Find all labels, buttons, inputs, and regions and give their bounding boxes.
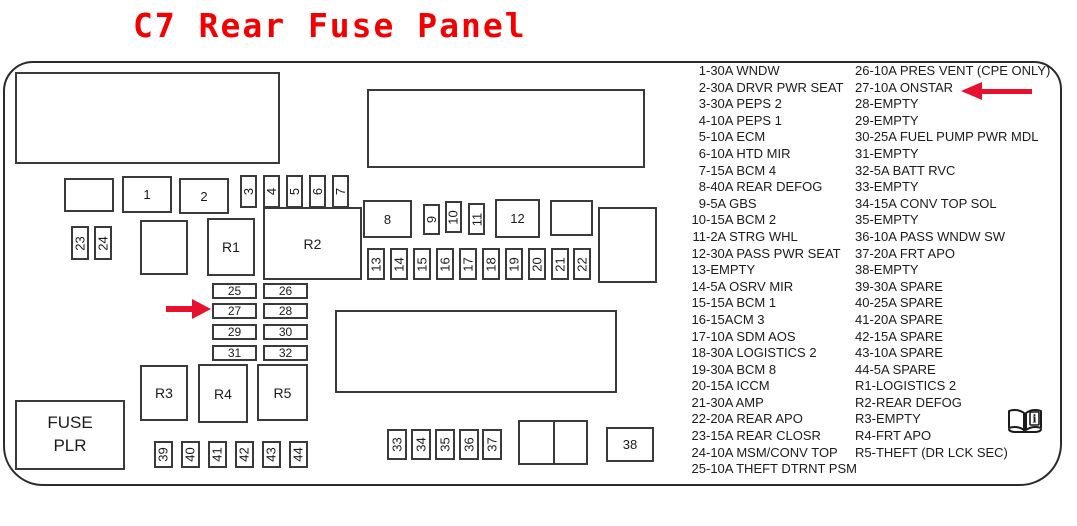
fuse-28: 28 xyxy=(263,303,308,319)
fuse-30: 30 xyxy=(263,324,308,340)
fuse-27: 27 xyxy=(212,303,257,319)
legend-entry: 43-10A SPARE xyxy=(855,345,1055,362)
fuse-25-label: 25 xyxy=(228,285,241,297)
fuse-2-label: 2 xyxy=(200,190,207,203)
legend-entry: 17-10A SDM AOS xyxy=(690,329,852,346)
fuse-37: 37 xyxy=(482,429,502,460)
legend-entry: 2-30A DRVR PWR SEAT xyxy=(690,80,852,97)
blank-box-row1 xyxy=(64,178,114,212)
fuse-panel-diagram-page: C7 Rear Fuse Panel FUSE PLR 123456789101… xyxy=(0,0,1077,526)
fuse-plr-label-line1: FUSE xyxy=(47,412,92,435)
legend-entry: 5-10A ECM xyxy=(690,129,852,146)
legend-entry: 7-15A BCM 4 xyxy=(690,163,852,180)
fuse-9: 9 xyxy=(423,204,440,235)
legend-entry: R1-LOGISTICS 2 xyxy=(855,378,1055,395)
fuse-41: 41 xyxy=(208,441,227,468)
legend-entry: 18-30A LOGISTICS 2 xyxy=(690,345,852,362)
legend-entry: 24-10A MSM/CONV TOP xyxy=(690,445,852,462)
fuse-33-label: 33 xyxy=(391,437,404,451)
fuse-41-label: 41 xyxy=(211,447,224,461)
legend-entry: 16-15ACM 3 xyxy=(690,312,852,329)
fuse-4-label: 4 xyxy=(265,188,278,195)
legend-entry: 1-30A WNDW xyxy=(690,63,852,80)
legend-entry: 29-EMPTY xyxy=(855,113,1055,130)
owners-manual-book-icon: i xyxy=(1006,407,1044,437)
legend-entry: 42-15A SPARE xyxy=(855,329,1055,346)
legend-entry: 39-30A SPARE xyxy=(855,279,1055,296)
fuse-1: 1 xyxy=(122,176,172,213)
legend-entry: 41-20A SPARE xyxy=(855,312,1055,329)
fuse-39-label: 39 xyxy=(157,447,170,461)
fuse-20: 20 xyxy=(528,248,546,280)
fuse-18-label: 18 xyxy=(485,257,498,271)
fuse-6: 6 xyxy=(309,175,326,208)
fuse-24-label: 24 xyxy=(97,236,110,250)
legend-entry: 10-15A BCM 2 xyxy=(690,212,852,229)
legend-entry: 22-20A REAR APO xyxy=(690,411,852,428)
legend-entry: 37-20A FRT APO xyxy=(855,246,1055,263)
legend-entry: 6-10A HTD MIR xyxy=(690,146,852,163)
legend-entry: 9-5A GBS xyxy=(690,196,852,213)
fuse-34-label: 34 xyxy=(415,437,428,451)
fuse-32: 32 xyxy=(263,345,308,361)
fuse-11: 11 xyxy=(468,203,485,235)
fuse-3: 3 xyxy=(240,175,257,208)
fuse-24: 24 xyxy=(94,226,112,260)
fuse-21: 21 xyxy=(551,248,569,280)
legend-entry: 25-10A THEFT DTRNT PSM xyxy=(690,461,852,478)
fuse-30-label: 30 xyxy=(279,326,292,338)
fuse-8-label: 8 xyxy=(384,213,391,226)
blank-box-mid-left xyxy=(140,220,188,275)
fuse-8: 8 xyxy=(363,200,412,238)
connector-block-top-middle xyxy=(367,89,645,168)
fuse-35: 35 xyxy=(435,429,455,460)
fuse-5-label: 5 xyxy=(288,188,301,195)
fuse-23: 23 xyxy=(71,226,89,260)
fuse-1-label: 1 xyxy=(143,188,150,201)
double-cavity-box xyxy=(518,420,588,465)
fuse-plr-label-line2: PLR xyxy=(53,435,86,458)
fuse-4: 4 xyxy=(263,175,280,208)
fuse-19: 19 xyxy=(505,248,523,280)
double-cavity-divider xyxy=(553,422,555,463)
legend-entry: 23-15A REAR CLOSR xyxy=(690,428,852,445)
fuse-12-label: 12 xyxy=(510,212,524,225)
legend-column-1: 1-30A WNDW2-30A DRVR PWR SEAT3-30A PEPS … xyxy=(690,63,852,478)
legend-entry: 32-5A BATT RVC xyxy=(855,163,1055,180)
fuse-18: 18 xyxy=(482,248,500,280)
relay-r1: R1 xyxy=(207,218,255,276)
fuse-36: 36 xyxy=(459,429,479,460)
fuse-42-label: 42 xyxy=(238,447,251,461)
fuse-20-label: 20 xyxy=(531,257,544,271)
fuse-15-label: 15 xyxy=(416,257,429,271)
blank-box-tall-right xyxy=(598,207,657,283)
fuse-35-label: 35 xyxy=(439,437,452,451)
connector-block-bottom-middle xyxy=(335,310,617,393)
relay-r5: R5 xyxy=(257,364,308,421)
fuse-39: 39 xyxy=(154,441,173,468)
arrow-head xyxy=(192,299,211,319)
fuse-22-label: 22 xyxy=(576,257,589,271)
legend-entry: 31-EMPTY xyxy=(855,146,1055,163)
relay-r3-label: R3 xyxy=(155,386,173,400)
fuse-6-label: 6 xyxy=(311,188,324,195)
fuse-36-label: 36 xyxy=(463,437,476,451)
relay-r5-label: R5 xyxy=(274,386,292,400)
blank-box-right-of-12 xyxy=(550,200,593,236)
fuse-13: 13 xyxy=(367,248,385,280)
legend-entry: 38-EMPTY xyxy=(855,262,1055,279)
legend-entry: 12-30A PASS PWR SEAT xyxy=(690,246,852,263)
legend-entry: 35-EMPTY xyxy=(855,212,1055,229)
arrow-tail xyxy=(166,306,192,312)
legend-entry: 27-10A ONSTAR xyxy=(855,80,1055,97)
fuse-16-label: 16 xyxy=(439,257,452,271)
relay-r3: R3 xyxy=(140,365,188,421)
legend-entry: 4-10A PEPS 1 xyxy=(690,113,852,130)
fuse-25: 25 xyxy=(212,283,257,299)
legend-entry: 11-2A STRG WHL xyxy=(690,229,852,246)
fuse-38: 38 xyxy=(606,427,654,462)
relay-r4: R4 xyxy=(198,364,248,423)
svg-text:i: i xyxy=(1032,413,1036,426)
relay-r2: R2 xyxy=(263,207,362,280)
legend-column-2: 26-10A PRES VENT (CPE ONLY)27-10A ONSTAR… xyxy=(855,63,1055,461)
legend-entry: 33-EMPTY xyxy=(855,179,1055,196)
legend-entry: R5-THEFT (DR LCK SEC) xyxy=(855,445,1055,462)
fuse-17: 17 xyxy=(459,248,477,280)
fuse-12: 12 xyxy=(495,199,540,238)
fuse-27-label: 27 xyxy=(228,305,241,317)
fuse-29-label: 29 xyxy=(228,326,241,338)
fuse-16: 16 xyxy=(436,248,454,280)
legend-entry: 36-10A PASS WNDW SW xyxy=(855,229,1055,246)
fuse-10-label: 10 xyxy=(447,210,460,224)
fuse-37-label: 37 xyxy=(486,437,499,451)
fuse-2: 2 xyxy=(179,178,229,214)
legend-entry: 44-5A SPARE xyxy=(855,362,1055,379)
legend-entry: 26-10A PRES VENT (CPE ONLY) xyxy=(855,63,1055,80)
fuse-40-label: 40 xyxy=(184,447,197,461)
fuse-23-label: 23 xyxy=(74,236,87,250)
legend-entry: 3-30A PEPS 2 xyxy=(690,96,852,113)
legend-entry: 30-25A FUEL PUMP PWR MDL xyxy=(855,129,1055,146)
fuse-26-label: 26 xyxy=(279,285,292,297)
fuse-15: 15 xyxy=(413,248,431,280)
fuse-31: 31 xyxy=(212,345,257,361)
fuse-43-label: 43 xyxy=(265,447,278,461)
fuse-32-label: 32 xyxy=(279,347,292,359)
fuse-7-label: 7 xyxy=(334,188,347,195)
relay-r1-label: R1 xyxy=(222,240,240,254)
legend-entry: 19-30A BCM 8 xyxy=(690,362,852,379)
fuse-33: 33 xyxy=(387,429,407,460)
legend-entry: 15-15A BCM 1 xyxy=(690,295,852,312)
fuse-44-label: 44 xyxy=(292,447,305,461)
fuse-7: 7 xyxy=(332,175,349,208)
fuse-43: 43 xyxy=(262,441,281,468)
fuse-plr-box: FUSE PLR xyxy=(15,400,125,470)
fuse-40: 40 xyxy=(181,441,200,468)
legend-entry: 13-EMPTY xyxy=(690,262,852,279)
fuse-31-label: 31 xyxy=(228,347,241,359)
relay-r4-label: R4 xyxy=(214,387,232,401)
fuse-42: 42 xyxy=(235,441,254,468)
fuse-13-label: 13 xyxy=(370,257,383,271)
fuse-27-arrow-right-icon xyxy=(166,299,211,319)
legend-entry: 14-5A OSRV MIR xyxy=(690,279,852,296)
connector-block-top-left xyxy=(15,72,280,164)
page-title: C7 Rear Fuse Panel xyxy=(133,6,527,45)
fuse-21-label: 21 xyxy=(554,257,567,271)
fuse-44: 44 xyxy=(289,441,308,468)
fuse-26: 26 xyxy=(263,283,308,299)
fuse-14-label: 14 xyxy=(393,257,406,271)
legend-entry: 8-40A REAR DEFOG xyxy=(690,179,852,196)
fuse-5: 5 xyxy=(286,175,303,208)
fuse-9-label: 9 xyxy=(425,216,438,223)
fuse-29: 29 xyxy=(212,324,257,340)
fuse-11-label: 11 xyxy=(470,212,483,226)
fuse-22: 22 xyxy=(573,248,591,280)
fuse-3-label: 3 xyxy=(242,188,255,195)
fuse-19-label: 19 xyxy=(508,257,521,271)
fuse-34: 34 xyxy=(411,429,431,460)
fuse-17-label: 17 xyxy=(462,257,475,271)
legend-entry: 21-30A AMP xyxy=(690,395,852,412)
fuse-38-label: 38 xyxy=(623,438,637,451)
legend-entry: 40-25A SPARE xyxy=(855,295,1055,312)
fuse-10: 10 xyxy=(445,201,462,233)
fuse-28-label: 28 xyxy=(279,305,292,317)
legend-entry: 28-EMPTY xyxy=(855,96,1055,113)
legend-entry: 34-15A CONV TOP SOL xyxy=(855,196,1055,213)
legend-entry: 20-15A ICCM xyxy=(690,378,852,395)
relay-r2-label: R2 xyxy=(304,237,322,251)
fuse-14: 14 xyxy=(390,248,408,280)
